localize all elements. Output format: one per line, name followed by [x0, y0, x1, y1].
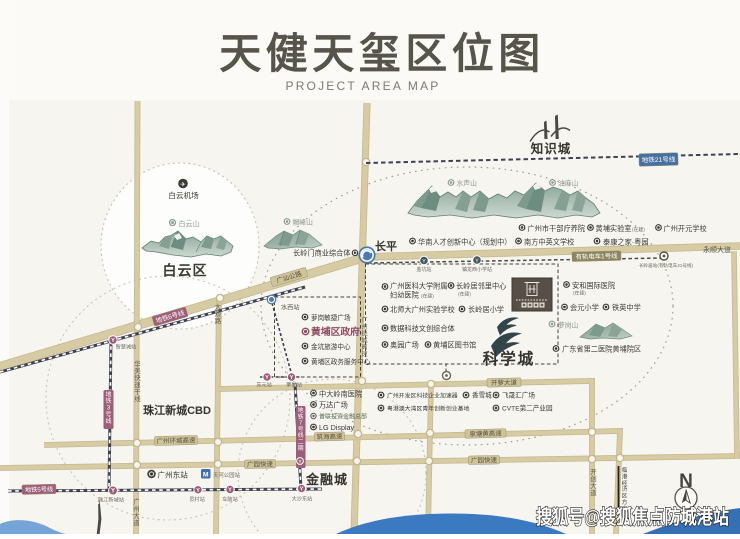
svg-text:知识城: 知识城: [530, 141, 572, 156]
svg-text:✈: ✈: [180, 182, 186, 189]
svg-text:车陂站: 车陂站: [222, 495, 238, 503]
svg-text:白云区: 白云区: [163, 263, 208, 279]
svg-text:CVTE第二产业园: CVTE第二产业园: [502, 404, 553, 413]
svg-text:长岭居站(有轨电车21号线): 长岭居站(有轨电车21号线): [639, 262, 694, 269]
svg-text:水声山: 水声山: [457, 179, 478, 188]
svg-text:珠江新城站: 珠江新城站: [98, 496, 124, 504]
svg-text:临港经济区方向: 临港经济区方向: [622, 466, 628, 512]
svg-text:黄埔区政府: 黄埔区政府: [311, 325, 360, 338]
svg-text:PROJECT AREA MAP: PROJECT AREA MAP: [285, 79, 440, 93]
svg-text:镇龙西小学站: 镇龙西小学站: [462, 266, 492, 273]
svg-text:地铁7号线二期: 地铁7号线二期: [298, 406, 304, 452]
svg-text:广东省第二医院黄埔院区: 广东省第二医院黄埔院区: [562, 345, 641, 354]
svg-text:会元小学: 会元小学: [570, 303, 599, 312]
svg-text:安和国际医院: 安和国际医院: [572, 281, 615, 290]
svg-text:天健天玺区位图: 天健天玺区位图: [219, 30, 545, 77]
svg-text:黄埔区图书馆: 黄埔区图书馆: [433, 341, 476, 350]
svg-text:(在建): (在建): [632, 226, 645, 233]
svg-text:白云山: 白云山: [179, 219, 200, 228]
svg-text:广州开元学校: 广州开元学校: [664, 224, 707, 233]
svg-text:Y: Y: [265, 375, 269, 381]
svg-text:Y: Y: [298, 459, 301, 464]
svg-text:广州医科大学附属: 广州医科大学附属: [390, 282, 448, 291]
svg-text:大沙东站: 大沙东站: [292, 495, 313, 503]
svg-text:南方中英文学校: 南方中英文学校: [524, 238, 574, 247]
svg-text:M: M: [203, 471, 209, 478]
svg-text:开创大道: 开创大道: [590, 468, 597, 497]
svg-text:华美快速干线: 华美快速干线: [134, 359, 141, 403]
svg-text:萝岗敏捷广场: 萝岗敏捷广场: [311, 313, 351, 322]
svg-text:普联投资金融总部: 普联投资金融总部: [319, 413, 367, 421]
svg-text:员村站: 员村站: [189, 495, 205, 503]
svg-text:数据科技文创综合体: 数据科技文创综合体: [390, 324, 455, 333]
svg-text:Y: Y: [228, 488, 232, 494]
svg-text:科学城: 科学城: [483, 349, 536, 368]
svg-text:Y: Y: [111, 338, 115, 344]
svg-text:天河公园站: 天河公园站: [213, 471, 241, 479]
svg-text:苏元站: 苏元站: [256, 381, 272, 389]
svg-text:北师大广州实验学校: 北师大广州实验学校: [390, 305, 455, 314]
svg-text:黄埔区政务服务中心: 黄埔区政务服务中心: [311, 357, 371, 366]
svg-text:Y: Y: [422, 259, 426, 265]
svg-text:香雪城: 香雪城: [472, 391, 492, 400]
svg-text:粤港澳大湾区青年创新创业基地: 粤港澳大湾区青年创新创业基地: [387, 405, 470, 413]
svg-text:萝岗站: 萝岗站: [286, 381, 302, 389]
svg-text:LG Display: LG Display: [319, 423, 355, 432]
svg-text:Y: Y: [290, 375, 294, 381]
svg-text:油麻山: 油麻山: [558, 179, 579, 188]
svg-text:长岭居邻里中心: 长岭居邻里中心: [456, 282, 506, 291]
svg-text:广州东站: 广州东站: [158, 470, 189, 480]
svg-text:长岭门商业综合体: 长岭门商业综合体: [293, 249, 351, 258]
svg-text:黄埔实验室: 黄埔实验室: [596, 224, 632, 233]
svg-text:白云机场: 白云机场: [168, 190, 199, 200]
svg-text:金融城: 金融城: [305, 472, 348, 487]
svg-text:奥园广场: 奥园广场: [390, 341, 419, 350]
svg-text:铁英中学: 铁英中学: [612, 303, 641, 312]
svg-text:广州开发区科技企业加速器: 广州开发区科技企业加速器: [387, 392, 458, 400]
svg-text:广州市干部疗养院: 广州市干部疗养院: [528, 224, 586, 233]
svg-text:泰康之家·粤园: 泰康之家·粤园: [603, 238, 649, 247]
svg-text:长平: 长平: [375, 239, 397, 253]
svg-text:Y: Y: [196, 488, 200, 494]
svg-text:妇幼医院: 妇幼医院: [390, 291, 419, 300]
svg-text:智慧城站: 智慧城站: [116, 343, 137, 351]
svg-text:(在建): (在建): [421, 293, 434, 300]
svg-text:永顺大道: 永顺大道: [703, 245, 731, 254]
svg-text:(在建): (在建): [573, 290, 586, 297]
svg-text:长岭居小学: 长岭居小学: [468, 305, 504, 314]
svg-text:中大岭南医院: 中大岭南医院: [319, 390, 362, 399]
svg-text:金坑站: 金坑站: [416, 266, 431, 273]
svg-text:广州绕城高速: 广州绕城高速: [361, 316, 367, 358]
svg-text:地铁5号线: 地铁5号线: [25, 485, 53, 494]
svg-text:大观路: 大观路: [215, 302, 222, 325]
svg-text:水西站: 水西站: [281, 304, 300, 312]
svg-text:搜狐号@搜狐焦点防城港站: 搜狐号@搜狐焦点防城港站: [536, 506, 729, 529]
svg-text:华南人才创新中心（规划中）: 华南人才创新中心（规划中）: [418, 238, 511, 247]
svg-text:Y: Y: [300, 487, 304, 493]
svg-text:珠江新城CBD: 珠江新城CBD: [143, 403, 211, 417]
svg-text:金坑旅游中心: 金坑旅游中心: [311, 342, 351, 351]
svg-text:飞晟汇广场: 飞晟汇广场: [502, 391, 535, 400]
svg-text:广州大道: 广州大道: [133, 497, 140, 527]
svg-text:万达广场: 万达广场: [319, 401, 348, 410]
svg-text:(在建): (在建): [458, 291, 471, 298]
svg-text:Y: Y: [475, 259, 479, 265]
svg-text:Y: Y: [111, 489, 115, 495]
svg-text:帽峰山: 帽峰山: [293, 218, 314, 227]
svg-text:萝岗山: 萝岗山: [558, 321, 579, 330]
